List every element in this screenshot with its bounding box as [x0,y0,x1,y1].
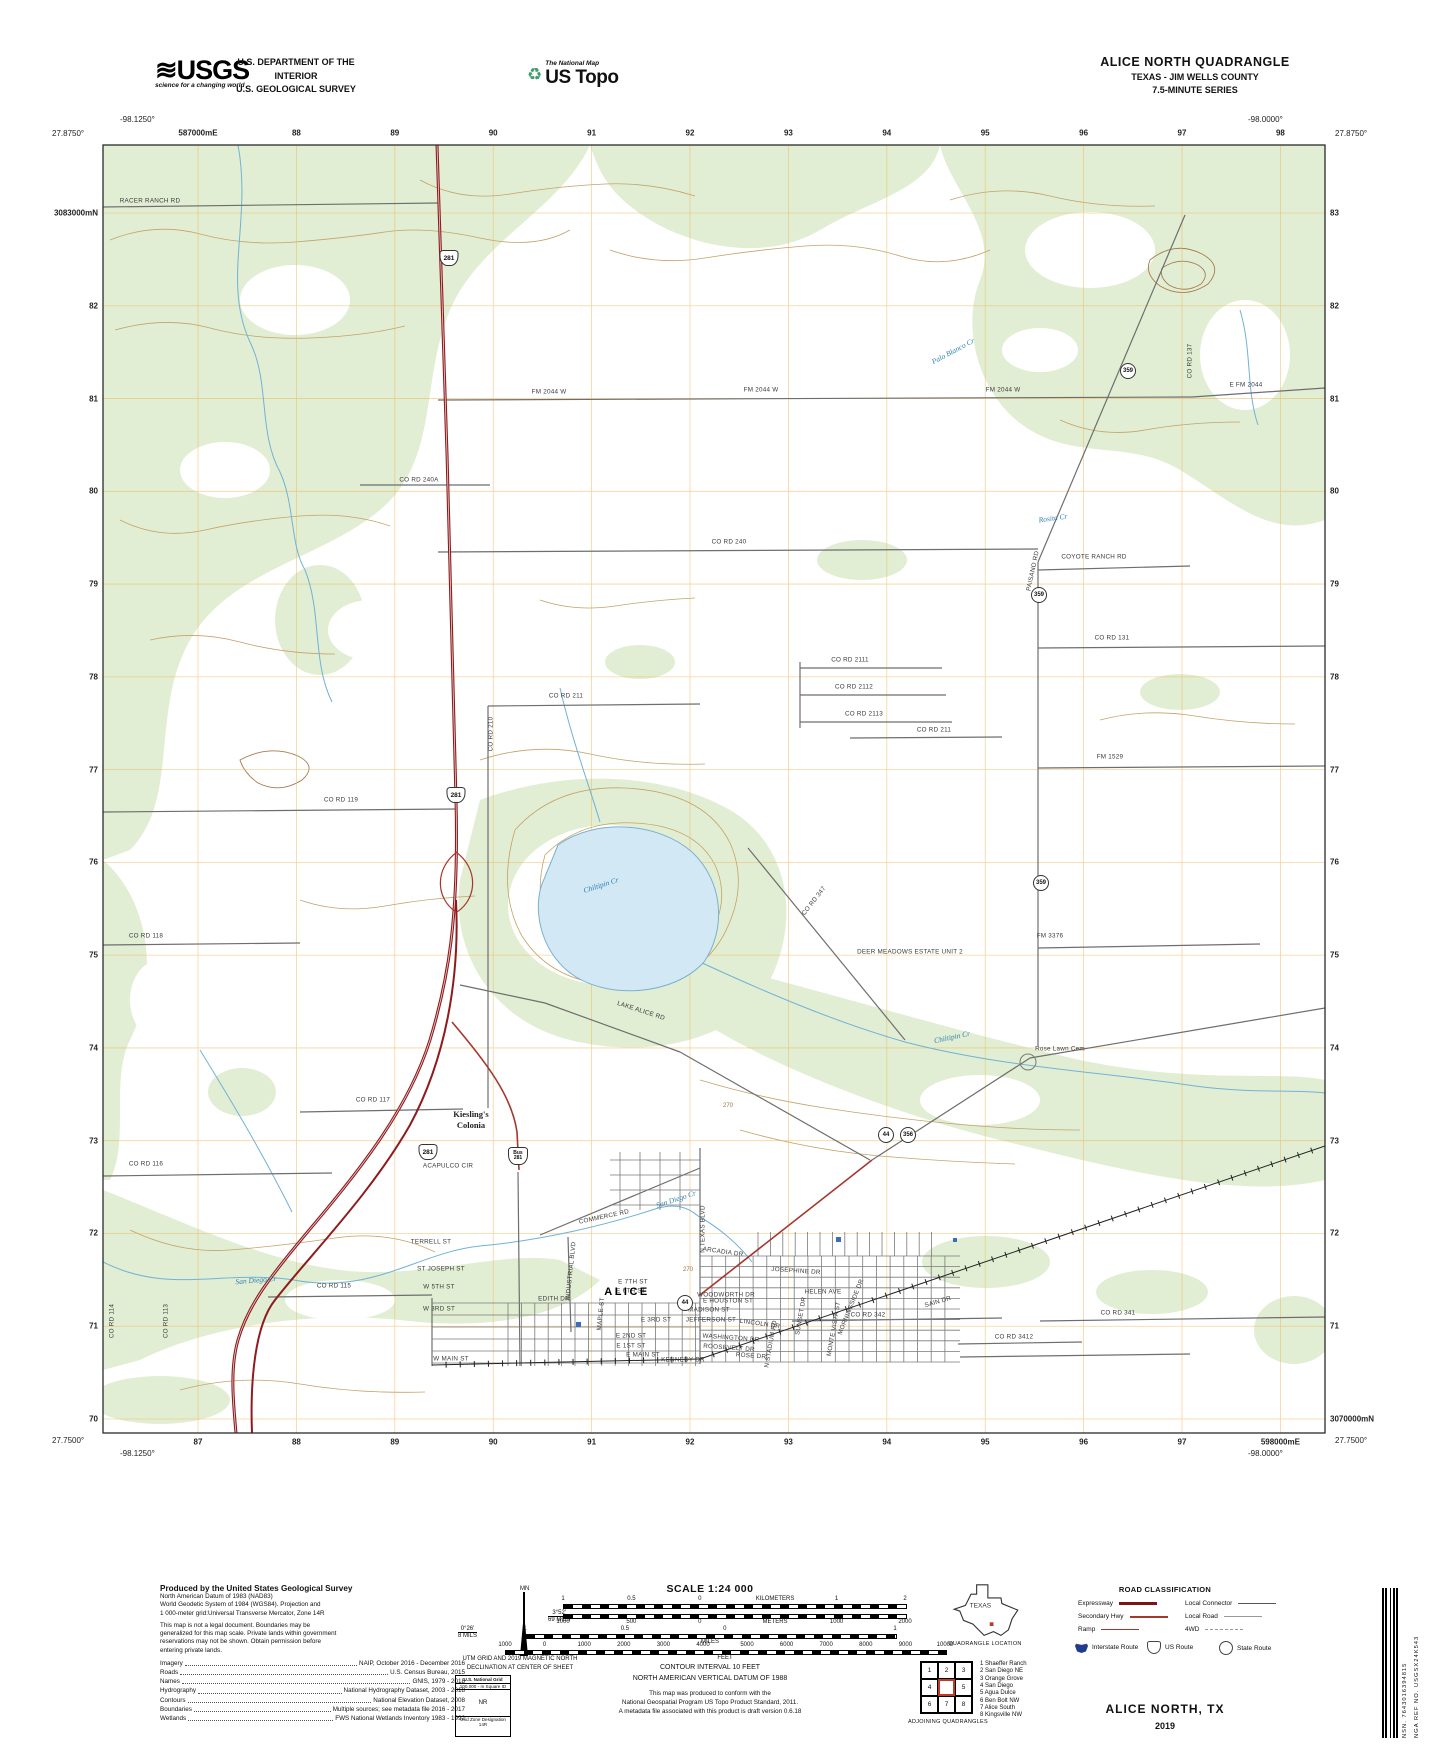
state-route-shield-icon [1219,1641,1233,1655]
usgs-topo-sheet: ≋USGS science for a changing world U.S. … [0,0,1445,1746]
legend-row: Expressway [1078,1600,1157,1607]
legend-line-sample [1238,1603,1276,1604]
legend-line-sample [1119,1602,1157,1605]
legend-label: 4WD [1185,1626,1199,1633]
legend-label: Ramp [1078,1626,1095,1633]
map-name: ALICE NORTH, TX [1065,1702,1265,1716]
legend-row: Ramp [1078,1626,1139,1633]
barcode [1382,1588,1400,1738]
legend-label: Expressway [1078,1600,1113,1607]
legend-row: Local Road [1185,1613,1262,1620]
barcode-nga: NGA REF NO. USGSX24K543 [1414,1588,1420,1738]
map-year: 2019 [1065,1721,1265,1731]
legend-shield-label: State Route [1237,1645,1271,1652]
legend-line-sample [1224,1616,1262,1617]
legend-row: 4WD [1185,1626,1243,1633]
legend-line-sample [1130,1616,1168,1618]
legend-shield-label: US Route [1165,1644,1193,1651]
legend-shield-row: State Route [1219,1641,1271,1655]
legend-row: Secondary Hwy [1078,1613,1168,1620]
barcode-nsn: NSN. 7643016394815 [1402,1588,1408,1738]
road-classification: ExpresswaySecondary HwyRampLocal Connect… [0,0,1445,1746]
legend-shield-row: US Route [1147,1641,1193,1654]
legend-shield-label: Interstate Route [1092,1644,1138,1651]
us-route-shield-icon [1147,1641,1161,1654]
legend-row: Local Connector [1185,1600,1276,1607]
legend-label: Secondary Hwy [1078,1613,1124,1620]
legend-line-sample [1101,1629,1139,1630]
legend-shield-row: Interstate Route [1075,1641,1138,1653]
legend-label: Local Road [1185,1613,1218,1620]
legend-line-sample [1205,1629,1243,1630]
legend-label: Local Connector [1185,1600,1232,1607]
interstate-route-shield-icon [1075,1641,1088,1653]
